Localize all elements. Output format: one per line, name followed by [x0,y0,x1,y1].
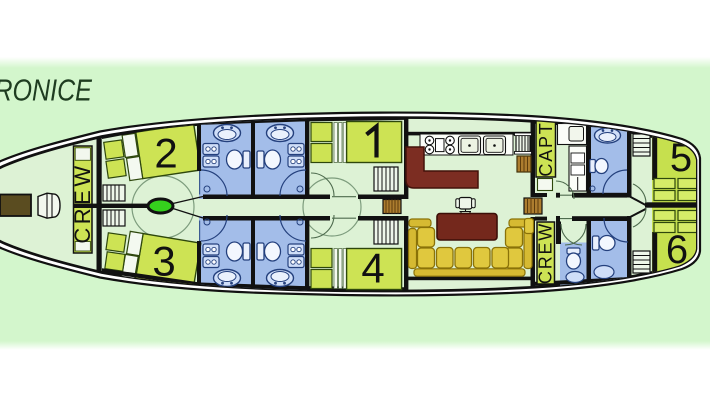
svg-text:4: 4 [361,245,384,292]
svg-text:CREW: CREW [536,222,556,284]
svg-text:CAPT: CAPT [536,121,556,176]
svg-text:2: 2 [154,130,177,177]
svg-text:CREW: CREW [70,162,95,243]
svg-text:RONICE: RONICE [0,72,93,107]
